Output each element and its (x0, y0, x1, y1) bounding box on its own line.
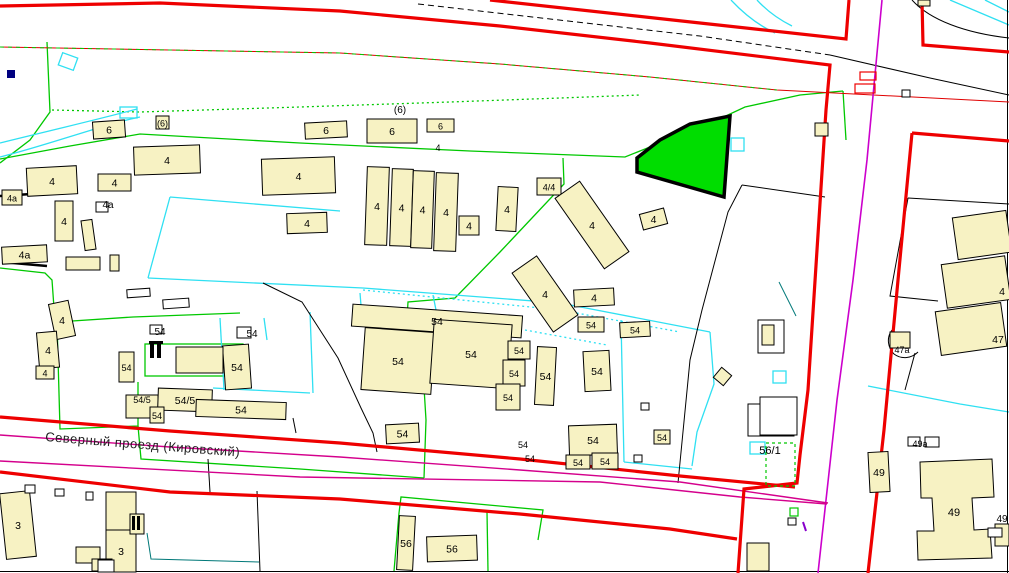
building[interactable] (941, 256, 1009, 308)
building[interactable] (747, 543, 769, 571)
building-number-label: 4 (420, 205, 426, 217)
map-mark (7, 70, 15, 78)
map-mark (860, 72, 876, 80)
building[interactable] (176, 347, 223, 373)
map-mark (149, 341, 163, 344)
map-text-label: 54 (246, 329, 258, 340)
building[interactable] (66, 257, 100, 270)
building[interactable] (815, 123, 828, 136)
building[interactable] (935, 303, 1006, 356)
building-number-label: 56 (400, 538, 412, 550)
building-number-label: (6) (157, 119, 168, 129)
building-number-label: 4 (466, 221, 472, 233)
building-number-label: 4 (45, 345, 51, 357)
map-mark (55, 489, 64, 496)
building-number-label: 4 (591, 293, 597, 305)
building-number-label: 4 (296, 171, 302, 183)
building-number-label: 54/5 (133, 395, 151, 405)
map-mark (790, 508, 798, 516)
building-number-label: 54 (540, 371, 552, 383)
map-viewport[interactable]: 6(6)66644а444а4444444444/444444475454545… (0, 0, 1009, 573)
building-number-label: 3 (15, 520, 21, 532)
pole-mark (803, 522, 806, 531)
map-text-label: 49а (912, 439, 927, 449)
map-mark (157, 344, 161, 358)
building-number-label: 4/4 (543, 183, 556, 193)
building-number-label: 54 (573, 458, 583, 468)
map-mark (773, 371, 786, 383)
building[interactable] (952, 210, 1009, 259)
map-mark (86, 492, 93, 500)
map-mark (132, 516, 135, 530)
map-mark (762, 325, 774, 345)
map-mark (902, 90, 910, 97)
map-mark (25, 485, 35, 493)
map-mark (98, 560, 114, 572)
building-number-label: 54 (587, 435, 599, 447)
building[interactable] (713, 367, 731, 385)
building-number-label: 54 (152, 411, 162, 421)
building[interactable] (918, 0, 930, 6)
building-number-label: 6 (106, 125, 112, 137)
building-number-label: 6 (323, 125, 329, 137)
building-number-label: 54 (465, 349, 477, 361)
map-mark (988, 528, 1002, 537)
building-number-label: 56 (446, 544, 458, 556)
building-number-label: 54 (600, 457, 610, 467)
building-number-label: 4 (374, 201, 380, 213)
building-number-label: 4а (19, 250, 31, 262)
building-number-label: 4 (504, 204, 510, 216)
map-mark (855, 84, 875, 93)
building-number-label: 54 (514, 346, 524, 356)
highlighted-parcel[interactable] (637, 116, 730, 197)
building-number-label: 4 (304, 218, 310, 230)
building-number-label: 4 (399, 203, 405, 215)
map-mark (150, 344, 154, 358)
building-number-label: 54/5 (175, 395, 196, 407)
building-number-label: 54 (657, 433, 667, 443)
map-canvas[interactable]: 6(6)66644а444а4444444444/444444475454545… (0, 0, 1009, 573)
building-number-label: 6 (438, 122, 443, 132)
map-text-label: 54 (518, 440, 528, 450)
map-mark (634, 455, 642, 462)
boundary-dashed-lines (0, 47, 1009, 102)
map-mark (760, 397, 797, 435)
building-number-label: 4 (42, 369, 47, 379)
map-mark (731, 138, 744, 151)
situation-black-lines (0, 0, 1009, 573)
building-number-label: 4 (164, 155, 170, 167)
building-number-label: 54 (431, 316, 443, 328)
building[interactable] (110, 255, 119, 271)
map-text-label: 4 (435, 143, 440, 153)
map-mark (137, 516, 140, 530)
building-number-label: 54 (503, 393, 513, 403)
map-mark (127, 288, 151, 298)
building-number-label: 4а (7, 194, 17, 204)
building-number-label: 4 (59, 315, 65, 327)
map-text-label: 56/1 (759, 445, 780, 457)
map-mark (163, 298, 190, 309)
building-number-label: 54 (231, 362, 243, 374)
building-number-label: 4 (999, 286, 1005, 298)
map-text-label: 47а (894, 345, 909, 355)
building-number-label: 4 (589, 220, 595, 232)
building-number-label: 4 (542, 289, 548, 301)
map-text-label: 49 (948, 507, 960, 519)
quarter-red-lines (0, 0, 1009, 573)
building-number-label: 54 (235, 405, 247, 417)
building-number-label: 54 (392, 356, 404, 368)
map-text-label: 49 (996, 514, 1008, 525)
building-number-label: 4 (112, 178, 118, 190)
building-number-label: 54 (630, 326, 640, 336)
building-number-label: 3 (118, 546, 124, 558)
building-number-label: 4 (443, 207, 449, 219)
map-text-label: 54 (154, 327, 166, 338)
map-text-label: (6) (394, 105, 406, 116)
building[interactable] (81, 219, 96, 250)
map-text-label: 4а (102, 200, 114, 211)
building-number-label: 54 (586, 321, 596, 331)
building-number-label: 6 (389, 126, 395, 138)
map-mark (788, 518, 796, 525)
building-number-label: 54 (121, 363, 131, 373)
map-mark (58, 53, 77, 71)
building-number-label: 47 (992, 334, 1004, 346)
building-number-label: 49 (873, 467, 885, 479)
buildings-layer (0, 0, 1009, 572)
map-mark (641, 403, 649, 410)
building-number-label: 54 (591, 366, 603, 378)
building-number-label: 54 (397, 429, 409, 441)
marks-layer (7, 53, 1002, 572)
building-number-label: 54 (509, 369, 519, 379)
map-text-label: 54 (525, 454, 535, 464)
building-number-label: 4 (61, 216, 67, 228)
building-number-label: 4 (49, 176, 55, 188)
building-number-label: 4 (651, 214, 657, 226)
